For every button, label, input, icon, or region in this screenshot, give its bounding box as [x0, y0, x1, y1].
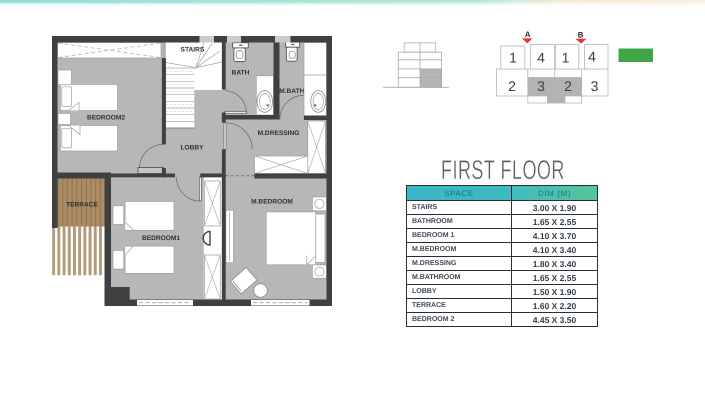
svg-text:LOBBY: LOBBY	[180, 145, 204, 152]
svg-text:4: 4	[588, 49, 596, 65]
svg-text:2: 2	[508, 78, 516, 94]
svg-text:B: B	[578, 30, 584, 39]
svg-text:3: 3	[591, 78, 599, 94]
svg-text:M.BATH: M.BATH	[279, 88, 304, 95]
svg-text:BEDROOM2: BEDROOM2	[87, 114, 125, 121]
svg-text:1: 1	[562, 50, 570, 66]
svg-text:M.BEDROOM: M.BEDROOM	[251, 198, 293, 205]
svg-text:1: 1	[509, 50, 517, 66]
svg-text:TERRACE: TERRACE	[66, 202, 98, 209]
svg-text:3: 3	[537, 78, 545, 94]
svg-text:A: A	[525, 30, 531, 39]
svg-text:2: 2	[564, 78, 572, 94]
svg-text:M.DRESSING: M.DRESSING	[258, 130, 300, 137]
svg-text:4: 4	[537, 50, 545, 66]
svg-text:STAIRS: STAIRS	[181, 47, 205, 54]
svg-text:BATH: BATH	[232, 70, 250, 77]
svg-text:BEDROOM1: BEDROOM1	[142, 235, 180, 242]
